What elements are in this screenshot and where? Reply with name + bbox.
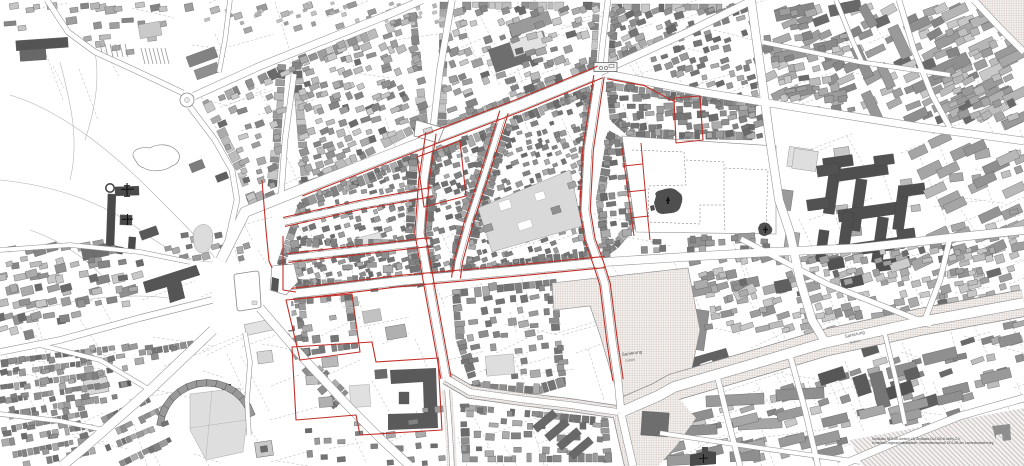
svg-text:Kombinat Liegenschaftskataster: Kombinat Liegenschaftskataster; Informat… — [872, 441, 994, 445]
